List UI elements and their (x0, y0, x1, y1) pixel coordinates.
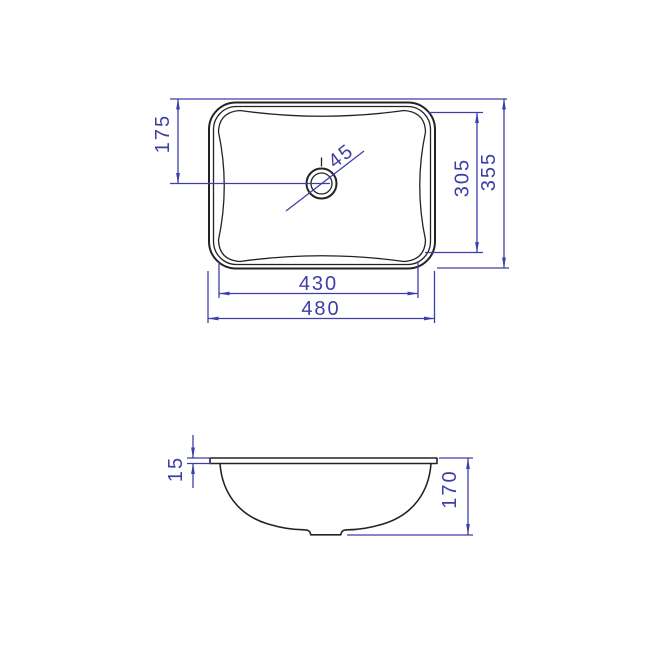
section-view: 15 170 (165, 435, 473, 535)
dimension-label-45: 45 (324, 140, 358, 173)
dimension-label-305: 305 (452, 158, 474, 197)
technical-drawing-canvas: 175 305 355 430 480 45 15 170 (0, 0, 670, 670)
dimension-label-480: 480 (301, 298, 340, 320)
dimension-label-170: 170 (439, 469, 461, 508)
plan-inner-rim-outline (214, 107, 431, 265)
section-rim-outline (210, 458, 437, 464)
dimension-label-175: 175 (152, 114, 174, 153)
section-bowl-outline (220, 464, 431, 535)
basin-technical-drawing: 175 305 355 430 480 45 15 170 (0, 0, 670, 670)
plan-view: 175 305 355 430 480 45 (152, 99, 509, 323)
plan-basin-wall-outline (219, 111, 426, 262)
dimension-label-355: 355 (478, 152, 500, 191)
dimension-label-430: 430 (299, 273, 338, 295)
dimension-label-15: 15 (165, 456, 187, 482)
plan-outer-rim-outline (209, 103, 435, 269)
